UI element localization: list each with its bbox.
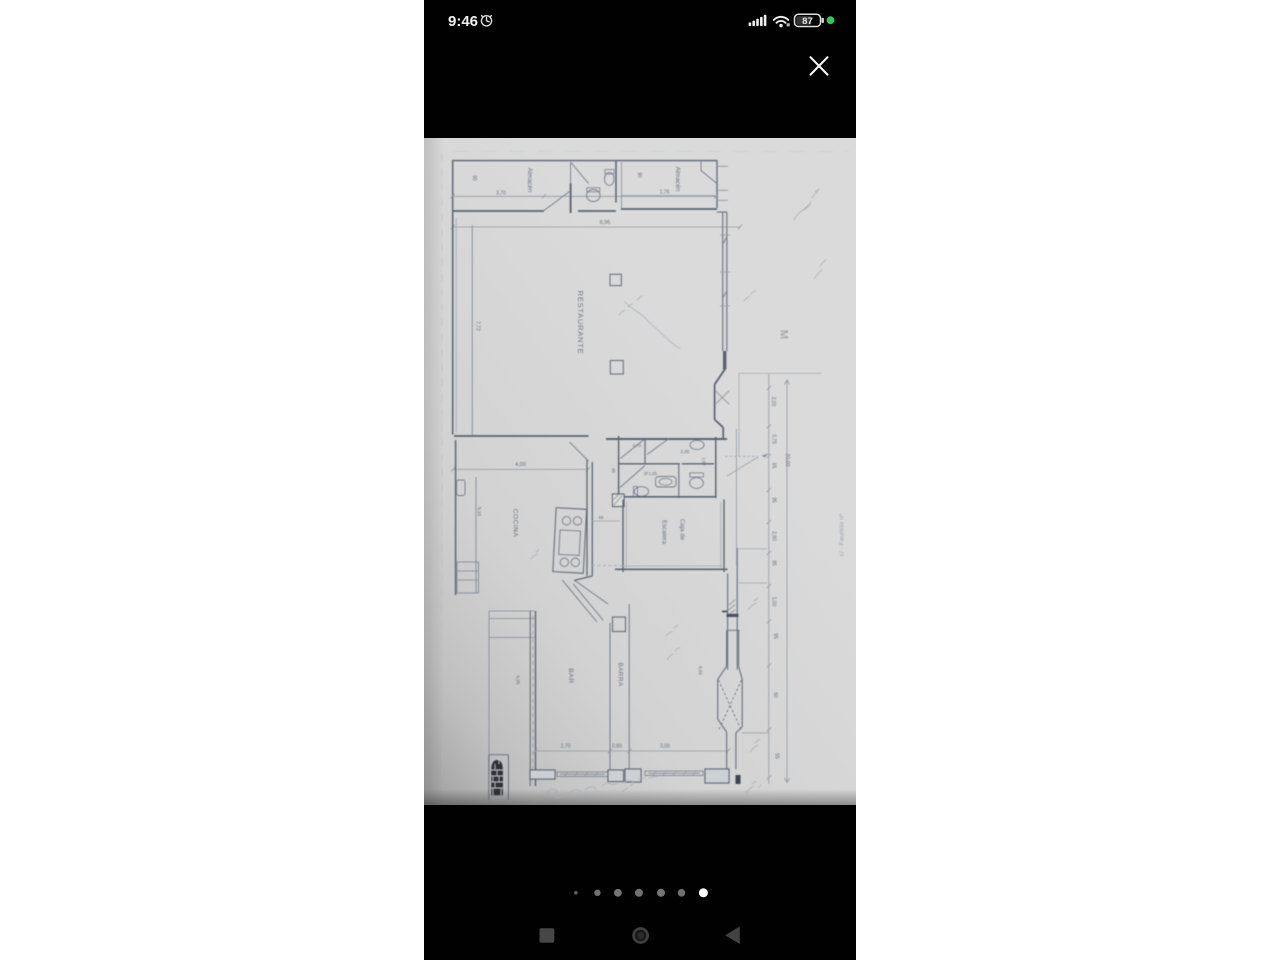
svg-text:87: 87 [802,16,813,27]
svg-text:7,72: 7,72 [475,321,481,331]
svg-text:6,02: 6,02 [698,666,703,675]
svg-text:Almacén: Almacén [526,168,533,193]
svg-text:4,00: 4,00 [515,462,526,468]
svg-text:20,00: 20,00 [784,453,790,467]
svg-text:0,80: 0,80 [612,744,622,750]
svg-text:2,00: 2,00 [770,397,776,407]
svg-text:90: 90 [636,172,642,178]
svg-text:Ø 1,65: Ø 1,65 [644,471,657,476]
svg-text:2,70: 2,70 [561,744,571,750]
svg-text:BARRA: BARRA [617,662,624,686]
svg-text:Escalera: Escalera [661,520,668,545]
svg-text:1,00: 1,00 [771,597,777,607]
svg-text:8,95: 8,95 [600,220,611,226]
svg-text:0,75: 0,75 [633,443,642,448]
svg-text:2,80: 2,80 [771,531,777,541]
svg-text:1,76: 1,76 [660,190,670,196]
svg-text:55: 55 [774,753,780,759]
svg-text:COCINA: COCINA [512,509,519,538]
svg-text:5,10: 5,10 [477,507,482,516]
svg-text:95: 95 [771,560,777,566]
svg-text:c/ · Fauricio nº: c/ · Fauricio nº [839,513,846,556]
svg-text:9:46: 9:46 [448,13,478,30]
svg-text:RESTAURANTE: RESTAURANTE [576,291,585,355]
svg-text:90: 90 [471,175,477,181]
svg-text:3,70: 3,70 [496,191,506,197]
svg-text:BAR: BAR [567,668,574,683]
svg-text:Almacén: Almacén [674,167,681,192]
svg-text:95: 95 [772,633,778,639]
svg-text:5,95: 5,95 [516,676,521,685]
svg-text:60: 60 [772,692,778,698]
svg-text:95: 95 [771,497,777,503]
svg-text:3,00: 3,00 [660,744,670,750]
svg-text:1,62: 1,62 [702,457,707,466]
svg-text:0,75: 0,75 [771,434,777,444]
svg-text:68: 68 [599,515,604,520]
svg-text:65: 65 [771,463,777,469]
svg-text:90: 90 [611,468,616,473]
svg-text:2,85: 2,85 [681,449,690,454]
svg-text:Caja de: Caja de [679,519,686,541]
svg-text:M: M [778,330,790,339]
